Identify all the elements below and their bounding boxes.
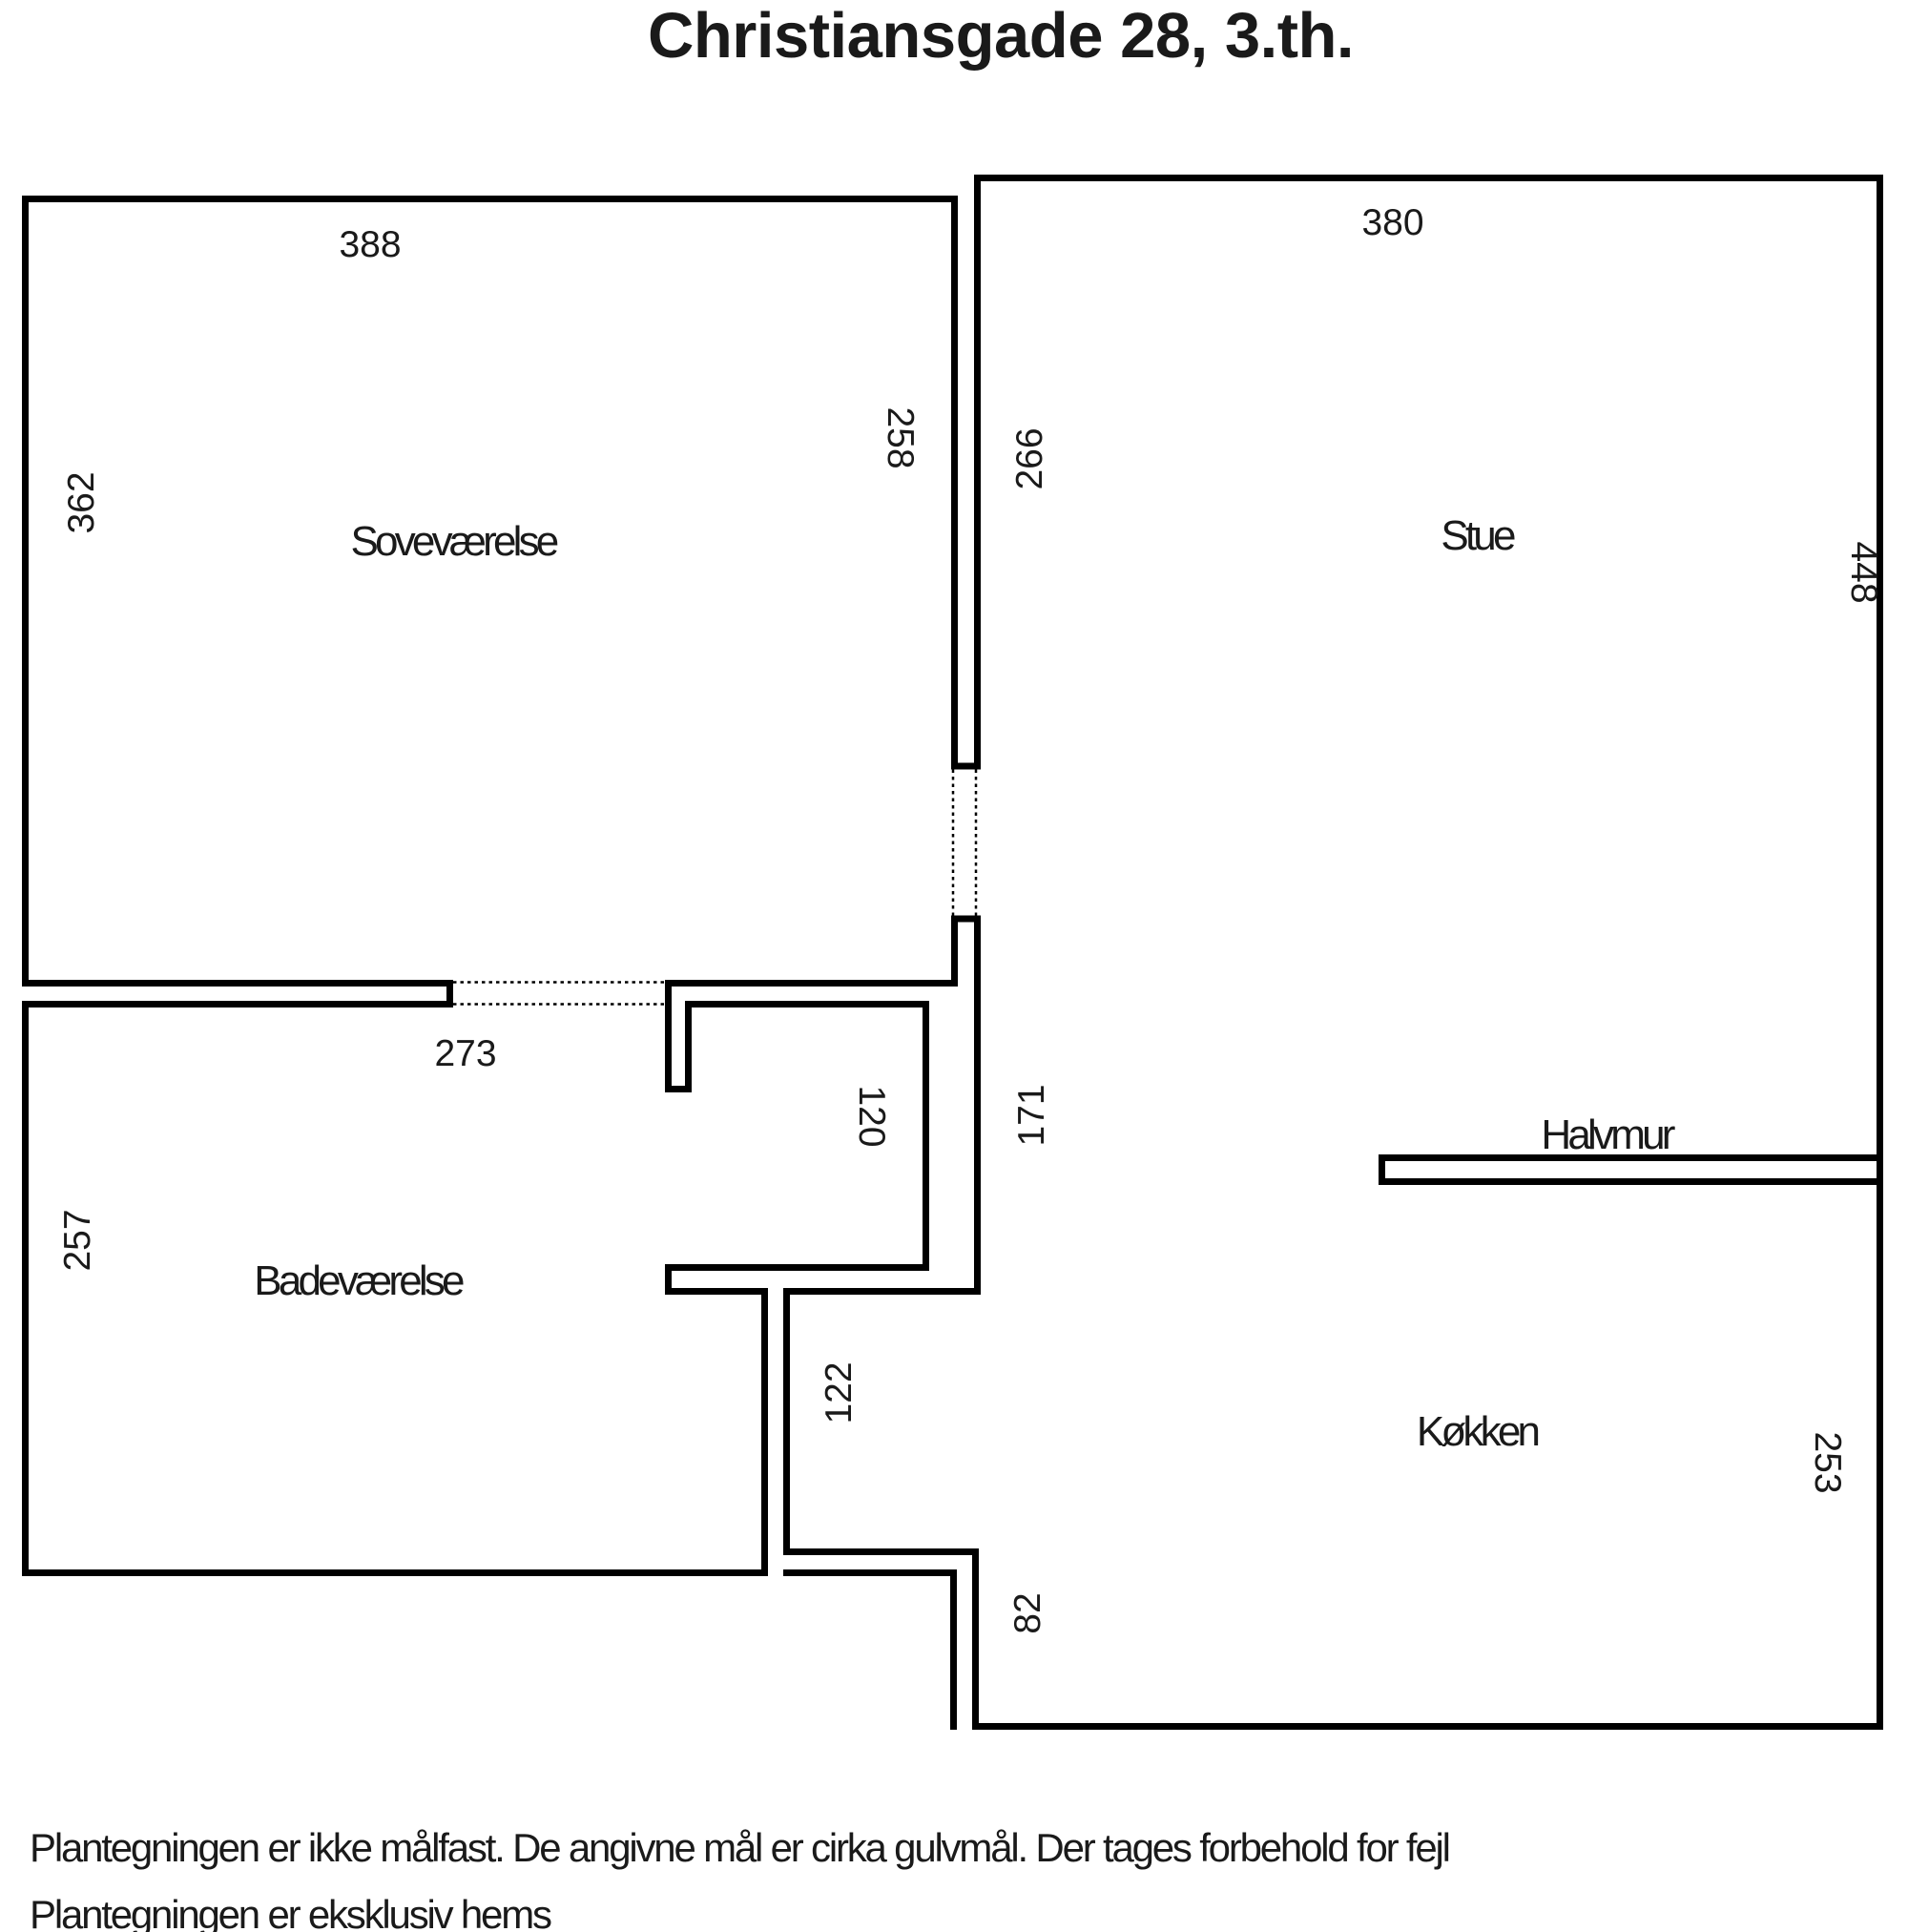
svg-text:380: 380	[1361, 202, 1423, 243]
svg-text:258: 258	[880, 406, 921, 468]
svg-text:362: 362	[61, 471, 102, 533]
svg-text:Soveværelse: Soveværelse	[351, 518, 558, 565]
svg-text:171: 171	[1011, 1084, 1052, 1146]
svg-text:266: 266	[1009, 427, 1050, 489]
svg-text:Stue: Stue	[1441, 512, 1515, 559]
svg-text:Christiansgade 28, 3.th.: Christiansgade 28, 3.th.	[648, 0, 1354, 72]
svg-text:Køkken: Køkken	[1417, 1408, 1539, 1455]
svg-text:122: 122	[819, 1361, 860, 1423]
svg-text:388: 388	[339, 224, 401, 265]
svg-text:257: 257	[57, 1209, 98, 1271]
svg-text:82: 82	[1007, 1592, 1048, 1633]
svg-text:Badeværelse: Badeværelse	[254, 1257, 464, 1304]
svg-text:Halvmur: Halvmur	[1541, 1111, 1674, 1158]
svg-text:Plantegningen er eksklusiv hem: Plantegningen er eksklusiv hems	[30, 1892, 551, 1932]
svg-text:Plantegningen er ikke målfast.: Plantegningen er ikke målfast. De angivn…	[30, 1825, 1449, 1870]
svg-text:273: 273	[434, 1033, 496, 1074]
svg-text:253: 253	[1807, 1431, 1848, 1493]
svg-text:448: 448	[1843, 541, 1884, 603]
svg-text:120: 120	[851, 1085, 892, 1147]
